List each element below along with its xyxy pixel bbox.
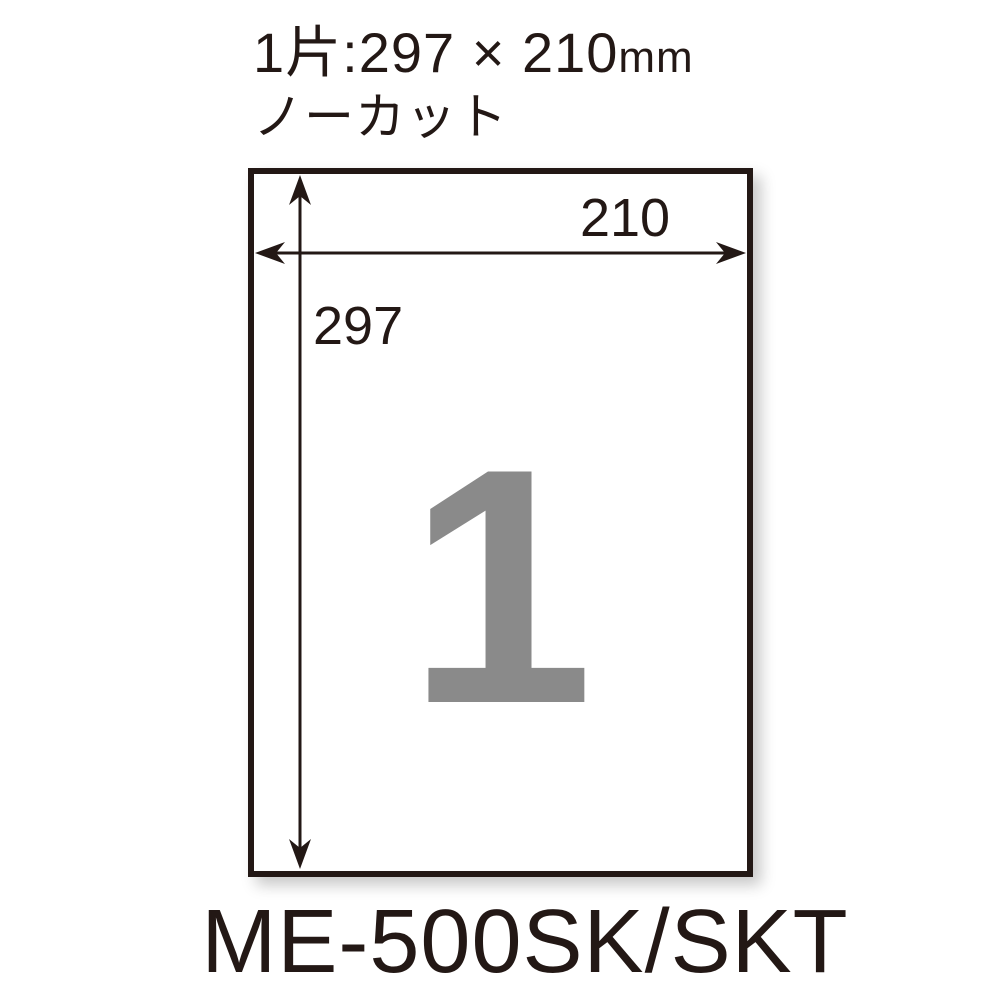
width-dimension-value: 210 xyxy=(560,191,690,245)
height-dimension-value: 297 xyxy=(313,299,403,353)
label-sheet-diagram: 1片:297 × 210mm ノーカット 1 210 297 ME-500SK/… xyxy=(0,0,1000,1000)
model-number-label: ME-500SK/SKT xyxy=(50,897,1000,987)
piece-size-label: 1片:297 × 210mm xyxy=(253,22,694,84)
cut-type-label: ノーカット xyxy=(253,90,508,145)
piece-size-unit: mm xyxy=(618,33,693,82)
piece-size-text: 1片:297 × 210 xyxy=(253,21,618,84)
piece-count-label: 1 xyxy=(248,419,753,754)
